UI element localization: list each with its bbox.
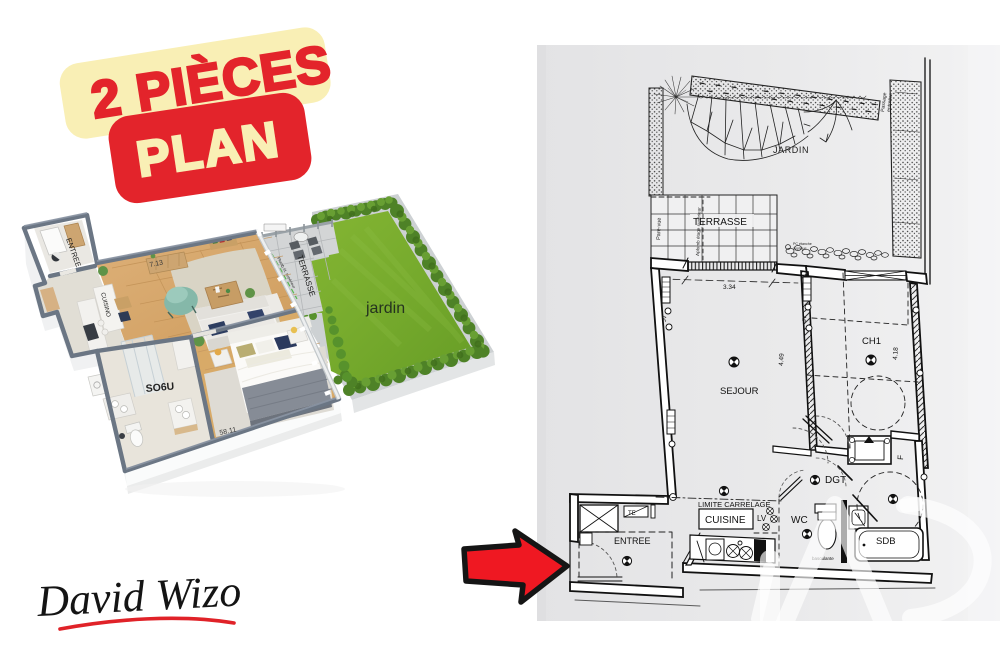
svg-text:SO6U: SO6U (145, 381, 175, 395)
svg-text:TE: TE (628, 511, 636, 517)
svg-text:3.34: 3.34 (723, 284, 736, 291)
svg-text:4.49: 4.49 (778, 353, 786, 366)
svg-text:JARDIN: JARDIN (773, 145, 809, 155)
svg-text:ENTREE: ENTREE (614, 536, 651, 546)
svg-text:JV: JV (662, 315, 668, 322)
svg-text:applique: applique (793, 247, 807, 251)
svg-text:F: F (896, 455, 905, 460)
svg-text:DGT: DGT (825, 475, 846, 486)
svg-text:WC: WC (791, 515, 808, 526)
svg-text:David Wizo: David Wizo (35, 566, 242, 626)
svg-text:jardin: jardin (365, 300, 405, 317)
svg-text:LV: LV (757, 514, 767, 523)
svg-text:SDB: SDB (876, 536, 896, 547)
svg-text:Pare-vue: Pare-vue (656, 218, 663, 241)
svg-text:JV: JV (802, 315, 808, 322)
svg-text:CH1: CH1 (862, 336, 881, 347)
svg-text:PC étanche: PC étanche (793, 242, 812, 246)
svg-text:LIMITE CARRELAGE: LIMITE CARRELAGE (698, 500, 771, 509)
svg-text:4.18: 4.18 (892, 347, 900, 360)
svg-text:CUISINE: CUISINE (705, 515, 746, 526)
svg-text:SEJOUR: SEJOUR (720, 386, 759, 397)
